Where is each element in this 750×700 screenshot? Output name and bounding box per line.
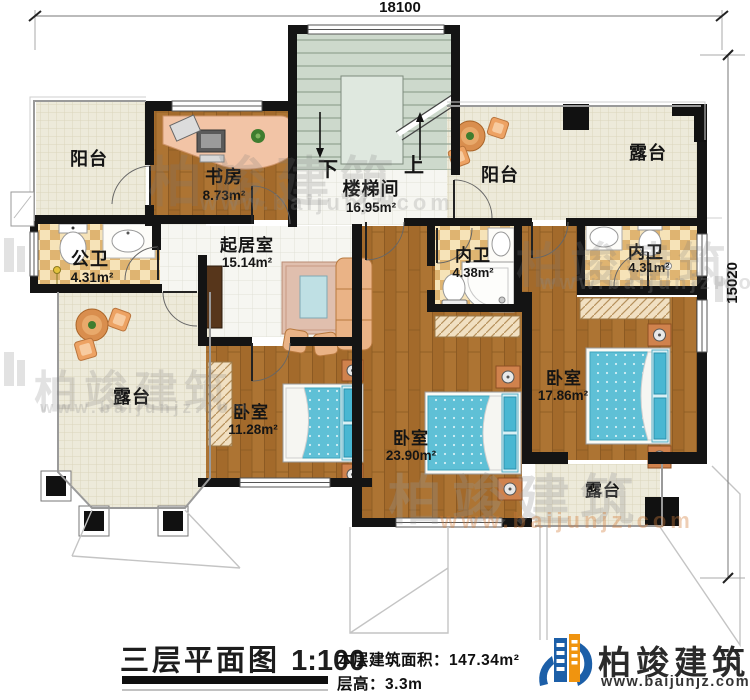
plan-title-text: 三层平面图 xyxy=(120,645,280,677)
column-bay-1 xyxy=(41,471,71,501)
logo-url: www.baijunjz.com xyxy=(601,674,750,690)
floor-area-value: 147.34m² xyxy=(449,652,519,669)
stairs xyxy=(296,30,452,170)
tv-cabinet xyxy=(205,266,222,328)
wardrobe-bedroom2 xyxy=(435,316,520,337)
wardrobe-bedroom3 xyxy=(580,298,670,319)
column-bay-2 xyxy=(79,506,109,536)
floor-height-line: 层高：3.3m xyxy=(337,672,422,694)
window-bedroom3 xyxy=(697,300,707,352)
title-underline-bar xyxy=(122,676,328,684)
floor-area-line: 本层建筑面积：147.34m² xyxy=(337,648,519,670)
floor-plan-drawing xyxy=(0,0,750,700)
window-study xyxy=(172,101,262,111)
balcony-tl-floor xyxy=(36,101,146,221)
window-bedroom1 xyxy=(240,478,330,487)
title-underline-shadow xyxy=(122,689,328,691)
floor-plan-page: 18100 15020 阳台 书房 8.73m² 下 上 楼梯间 16.95m²… xyxy=(0,0,750,700)
stair-hall-floor xyxy=(296,170,452,225)
floor-height-value: 3.3m xyxy=(385,676,422,693)
window-public-bath xyxy=(30,232,38,276)
column-bay-3 xyxy=(158,506,188,536)
logo-mark xyxy=(539,634,592,686)
window-bedroom2 xyxy=(396,518,502,527)
window-ensuite2 xyxy=(697,234,707,276)
floor-height-label: 层高： xyxy=(337,676,385,693)
plan-title: 三层平面图 1:100 xyxy=(120,637,365,679)
floor-area-label: 本层建筑面积： xyxy=(337,652,449,669)
wardrobe-bedroom1 xyxy=(208,362,232,446)
terrace-br-floor xyxy=(535,464,660,526)
window-stairwell xyxy=(308,25,444,34)
